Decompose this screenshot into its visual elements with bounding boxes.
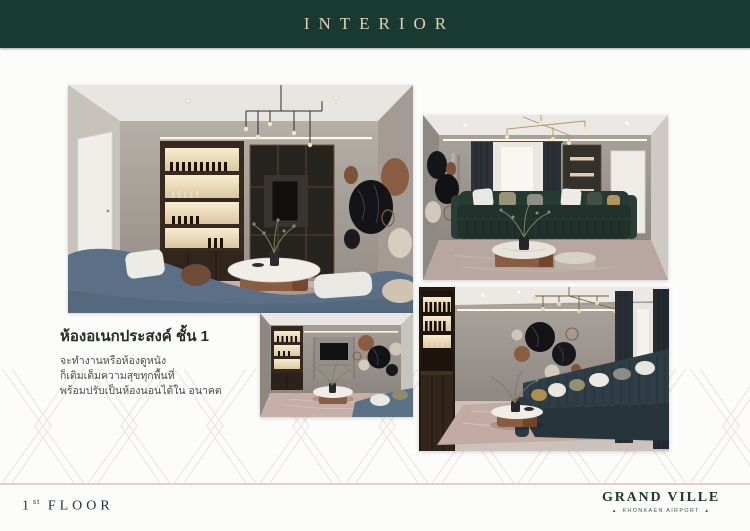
section-body-line-2: ก็เติมเต็มความสุขทุกพื้นที่ bbox=[60, 369, 258, 384]
interior-photo-4-art bbox=[419, 287, 669, 451]
brochure-page: INTERIOR bbox=[0, 0, 750, 531]
interior-photo-1-art bbox=[68, 85, 413, 313]
page-title: INTERIOR bbox=[295, 14, 455, 34]
brand-ornament-left: ▲ bbox=[610, 508, 620, 513]
section-description: ห้องอเนกประสงค์ ชั้น 1 จะทำงานหรือห้องดู… bbox=[60, 324, 258, 399]
brand-tagline: KHONKAEN AIRPORT bbox=[622, 508, 699, 514]
footer-divider bbox=[0, 483, 750, 485]
section-body-line-1: จะทำงานหรือห้องดูหนัง bbox=[60, 354, 258, 369]
floor-word: FLOOR bbox=[48, 499, 114, 514]
interior-photo-2-art bbox=[423, 115, 668, 280]
brand-tagline-row: ▲ KHONKAEN AIRPORT ▲ bbox=[602, 508, 720, 514]
floor-label: 1st FLOOR bbox=[22, 497, 114, 515]
brand-name: GRAND VILLE bbox=[602, 490, 720, 506]
brand-logo: GRAND VILLE ▲ KHONKAEN AIRPORT ▲ bbox=[602, 490, 720, 514]
interior-photo-tv-wall bbox=[260, 313, 413, 417]
interior-photo-bar-lounge bbox=[68, 85, 413, 313]
interior-photo-window-sofa bbox=[423, 115, 668, 280]
header-bar: INTERIOR bbox=[0, 0, 750, 48]
brand-ornament-right: ▲ bbox=[702, 508, 712, 513]
interior-photo-3-art bbox=[260, 313, 413, 417]
section-body-line-3: พร้อมปรับเป็นห้องนอนได้ใน อนาคต bbox=[60, 384, 258, 399]
interior-photo-bar-sofa bbox=[419, 287, 669, 451]
floor-number: 1 bbox=[22, 499, 33, 514]
floor-ordinal: st bbox=[33, 497, 40, 506]
section-heading: ห้องอเนกประสงค์ ชั้น 1 bbox=[60, 324, 258, 348]
